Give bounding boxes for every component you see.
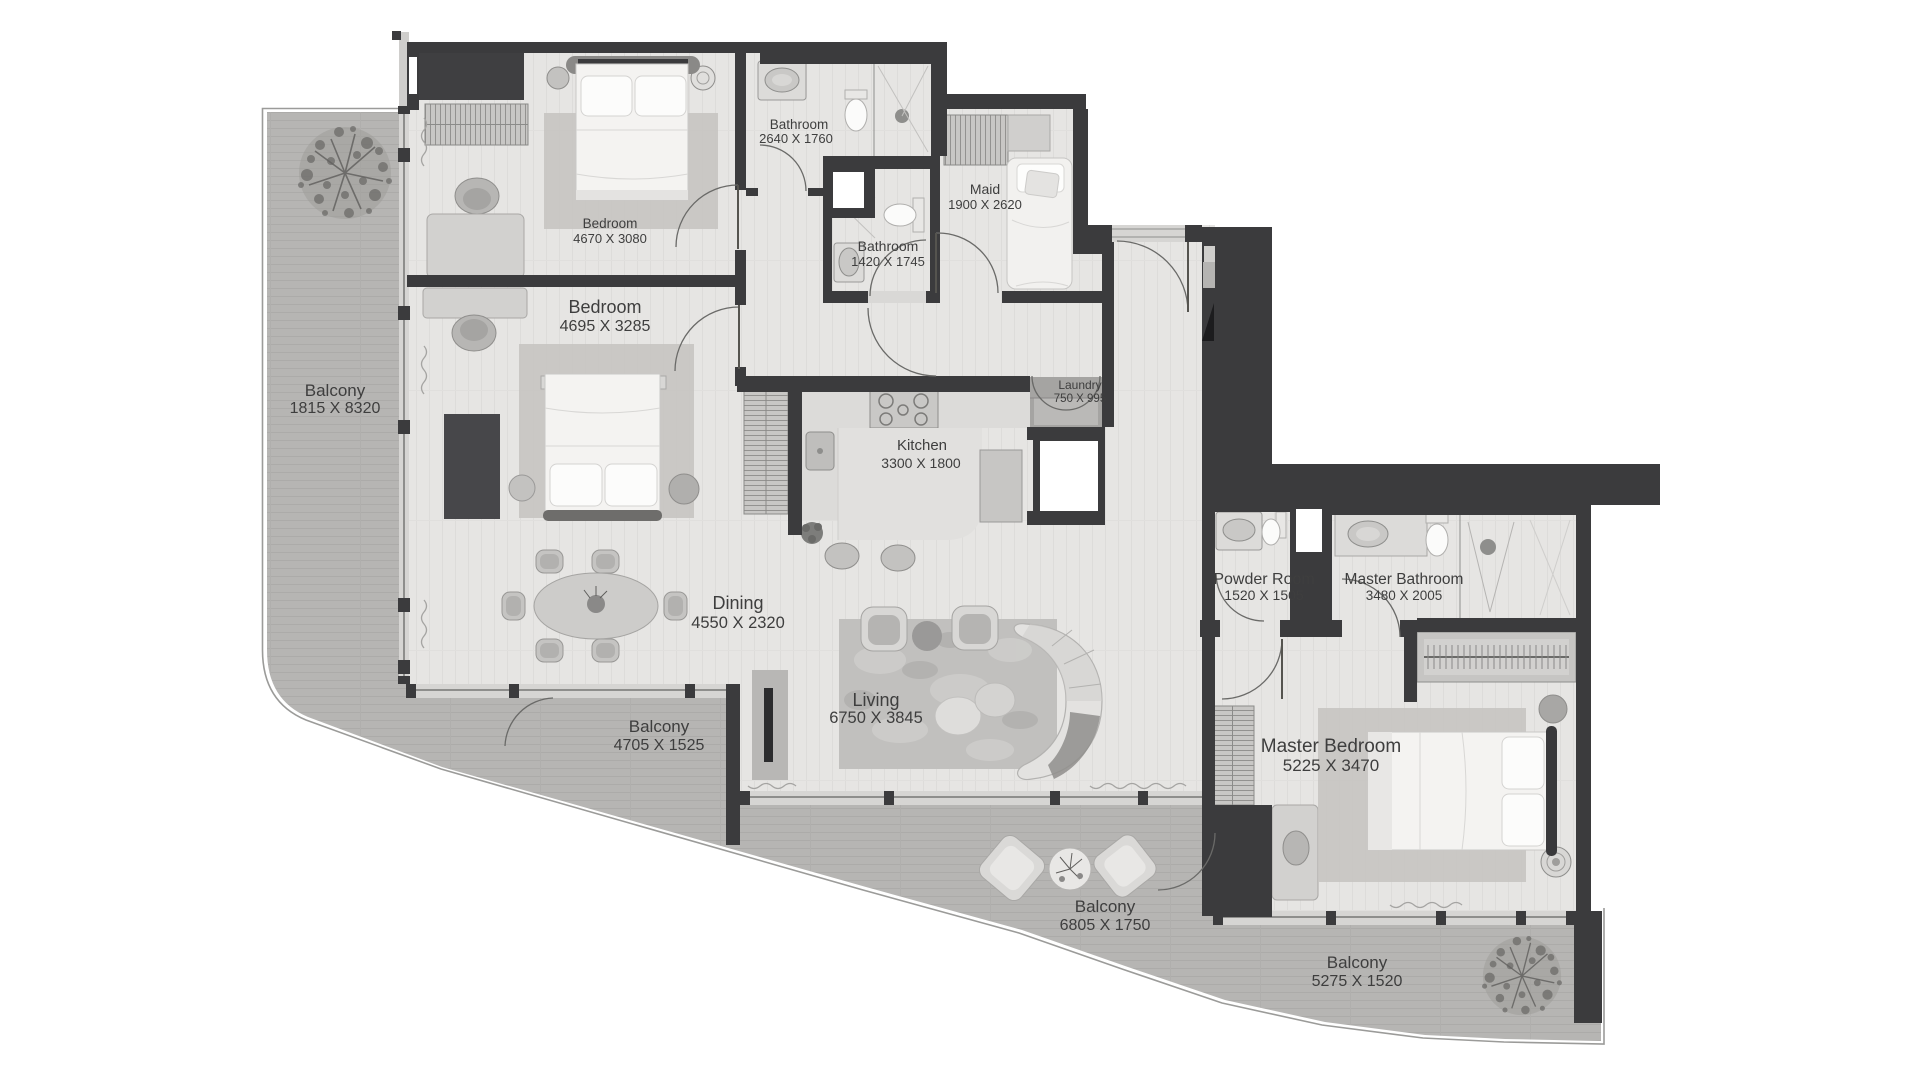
svg-text:Master Bathroom: Master Bathroom xyxy=(1345,571,1464,588)
svg-text:Balcony: Balcony xyxy=(629,717,690,736)
svg-text:4705 X 1525: 4705 X 1525 xyxy=(614,737,705,754)
svg-text:Bedroom: Bedroom xyxy=(583,216,638,231)
svg-text:4670 X 3080: 4670 X 3080 xyxy=(573,231,647,246)
svg-text:Powder Room: Powder Room xyxy=(1213,571,1314,588)
svg-text:Balcony: Balcony xyxy=(1075,897,1136,916)
svg-text:Balcony: Balcony xyxy=(305,381,366,400)
svg-text:3300 X 1800: 3300 X 1800 xyxy=(881,455,961,471)
svg-text:Bathroom: Bathroom xyxy=(770,117,829,132)
svg-text:4550 X 2320: 4550 X 2320 xyxy=(691,614,785,632)
svg-text:Balcony: Balcony xyxy=(1327,953,1388,972)
svg-text:Laundry: Laundry xyxy=(1058,378,1101,392)
svg-text:5225 X 3470: 5225 X 3470 xyxy=(1283,756,1379,775)
svg-text:5275 X 1520: 5275 X 1520 xyxy=(1312,973,1403,990)
svg-text:1520 X 1505: 1520 X 1505 xyxy=(1224,587,1304,603)
svg-text:1420 X 1745: 1420 X 1745 xyxy=(851,254,925,269)
svg-text:Maid: Maid xyxy=(970,181,1000,197)
svg-text:Living: Living xyxy=(852,690,899,710)
svg-text:Bedroom: Bedroom xyxy=(568,297,641,317)
svg-text:1900 X 2620: 1900 X 2620 xyxy=(948,197,1022,212)
svg-text:750 X 995: 750 X 995 xyxy=(1054,393,1106,405)
svg-text:6750 X 3845: 6750 X 3845 xyxy=(829,709,923,727)
svg-text:1815 X 8320: 1815 X 8320 xyxy=(290,400,381,417)
svg-text:4695 X 3285: 4695 X 3285 xyxy=(560,318,651,335)
svg-text:6805 X 1750: 6805 X 1750 xyxy=(1060,917,1151,934)
svg-text:3480 X 2005: 3480 X 2005 xyxy=(1366,588,1443,603)
svg-text:Bathroom: Bathroom xyxy=(858,238,919,254)
svg-text:2640 X 1760: 2640 X 1760 xyxy=(759,131,833,146)
svg-text:Kitchen: Kitchen xyxy=(897,437,947,454)
svg-text:Master Bedroom: Master Bedroom xyxy=(1261,736,1401,757)
svg-text:Dining: Dining xyxy=(712,593,763,613)
